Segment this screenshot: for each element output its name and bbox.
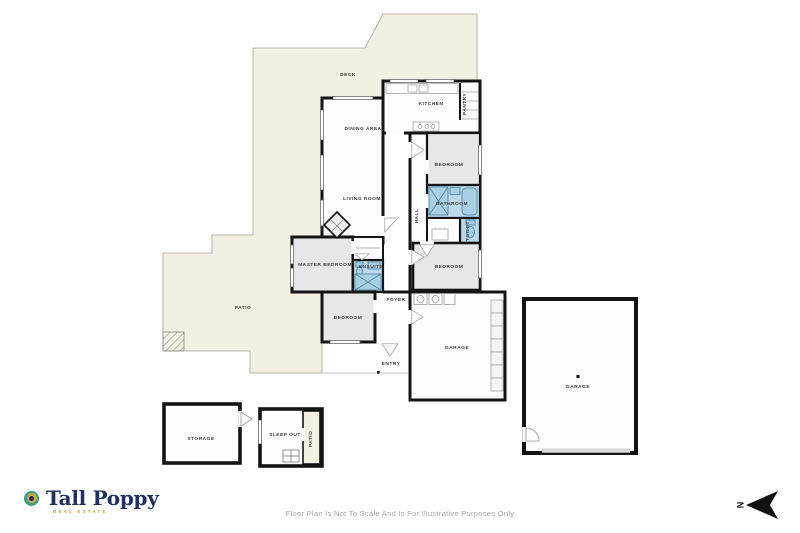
tall-poppy-logo-icon [24,491,39,506]
logo-name: Tall Poppy [46,486,159,510]
label-foyer: FOYER [386,297,405,303]
label-pantry: PANTRY [462,93,468,116]
label-living: LIVING ROOM [343,196,381,202]
laundry-fixtures [414,294,455,305]
label-master: MASTER BEDROOM [298,262,352,268]
label-sleep-out-patio: PATIO [308,431,314,447]
label-sleep-out: SLEEP OUT [269,432,301,438]
label-ensuite: ENSUITE [359,264,384,270]
label-patio: PATIO [235,305,251,311]
garage-shelves [491,300,503,391]
room-garage-detached [524,299,636,453]
label-garage-detached: GARAGE [566,384,590,390]
garage-post-dot [577,375,580,378]
label-bedroom-right: BEDROOM [435,264,464,270]
storage-door-leaf [241,412,252,426]
label-storage: STORAGE [187,436,215,442]
sleep-out-window [283,450,299,462]
garage-door-strip [542,449,630,453]
label-dining: DINING AREA [344,126,381,132]
room-bedroom-top [427,133,480,185]
floor-plan-page: DECK KITCHEN PANTRY DINING AREA BEDROOM … [0,0,800,533]
patio-step [163,332,184,351]
label-garage-attached: GARAGE [445,345,469,351]
label-deck: DECK [340,72,356,78]
room-wardrobe [353,237,383,260]
label-bedroom-top: BEDROOM [435,162,464,168]
entry-dot [377,371,380,374]
label-toilet: TOILET [465,221,471,241]
label-bedroom-lower: BEDROOM [334,315,363,321]
label-kitchen: KITCHEN [419,101,444,107]
label-entry: ENTRY [382,361,401,367]
label-hall: HALL [414,209,420,224]
floor-plan: DECK KITCHEN PANTRY DINING AREA BEDROOM … [0,0,800,533]
disclaimer-text: Floor Plan Is Not To Scale And Is For Il… [0,509,800,518]
north-label: N [735,502,745,509]
label-bathroom: BATHROOM [436,201,468,207]
room-storage [164,404,240,463]
